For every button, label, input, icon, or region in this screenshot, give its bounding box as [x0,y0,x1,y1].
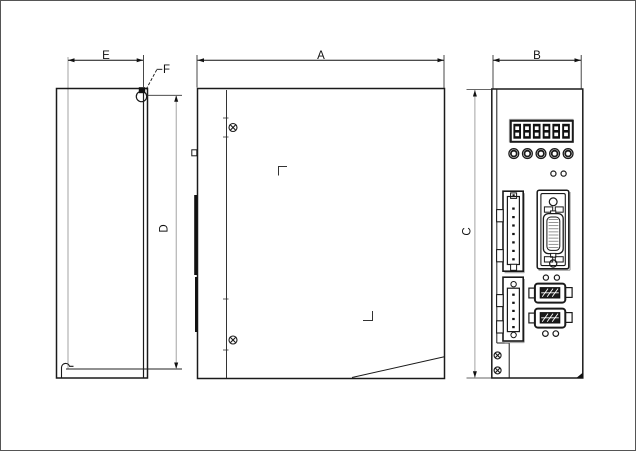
side-tab [192,150,197,156]
dim-label-d: D [159,224,171,232]
dim-label-b: B [533,50,541,62]
hook-tab [139,87,145,93]
technical-drawing-page: E A B D C F [0,0,640,452]
drawing-canvas: E A B D C F [0,0,640,452]
dim-label-c: C [462,227,474,235]
io-connector [537,190,570,270]
dim-label-f: F [163,64,170,76]
connector-edge-lower [195,277,198,332]
encoder-connector-1 [529,284,572,303]
seven-segment-display [509,119,573,142]
connector-edge-upper [194,195,197,275]
dim-label-e: E [102,50,110,62]
dim-label-a: A [317,50,325,62]
encoder-connector-2 [529,309,572,328]
